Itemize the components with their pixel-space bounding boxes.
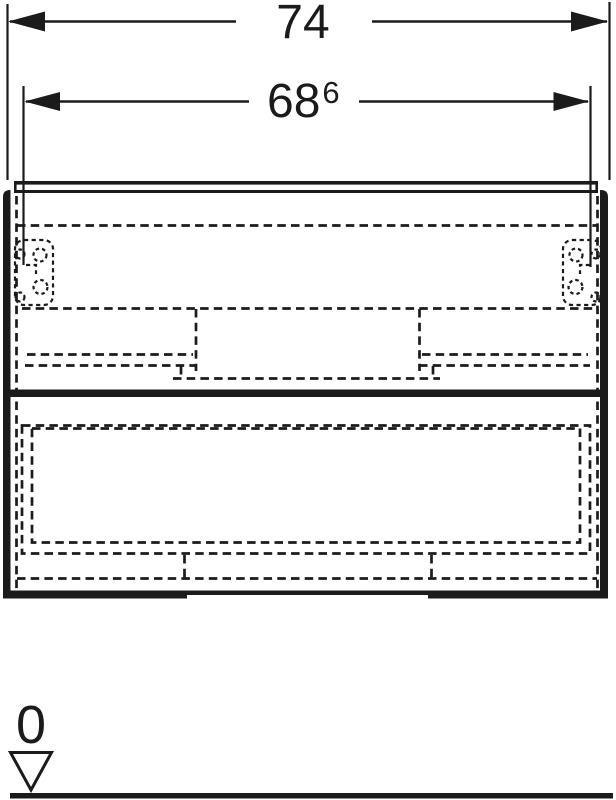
- lower-drawer-outer-outline: [22, 426, 590, 554]
- dim-inner-width-label: 686: [267, 75, 340, 128]
- cabinet-bottom-right-step: [428, 591, 608, 599]
- datum-level-marker: 0: [10, 695, 613, 799]
- slide-roller-icon: [34, 249, 47, 262]
- drawer-slide-left: [15, 240, 53, 305]
- countertop-top-edge: [14, 181, 598, 185]
- slide-roller-icon: [569, 280, 583, 294]
- arrowhead-right-icon: [571, 12, 608, 32]
- datum-label: 0: [16, 695, 46, 755]
- datum-triangle-icon: [11, 753, 52, 791]
- slide-roller-icon: [34, 280, 48, 294]
- countertop-bottom-edge: [14, 190, 598, 193]
- slide-roller-icon: [592, 250, 601, 259]
- arrowhead-right-icon: [554, 92, 590, 111]
- dim-inner-width: 686: [24, 75, 591, 267]
- dim-inner-width-superscript: 6: [322, 75, 339, 110]
- drawer-divider-edge: [3, 390, 608, 398]
- arrowhead-left-icon: [25, 92, 61, 111]
- countertop-left-endcap: [14, 181, 17, 193]
- lower-drawer-hidden-box: [17, 426, 597, 579]
- cabinet-elevation-drawing: 74 686: [0, 0, 616, 800]
- slide-bracket-detail: [26, 265, 36, 274]
- arrowhead-left-icon: [8, 12, 45, 32]
- lower-drawer-inner-outline: [32, 429, 580, 543]
- slide-roller-icon: [592, 293, 601, 302]
- technical-drawing-canvas: 74 686: [0, 0, 616, 800]
- drawer-slide-right: [563, 240, 601, 305]
- cabinet-carcass: [3, 181, 608, 599]
- slide-bracket-detail: [580, 265, 590, 274]
- slide-roller-icon: [570, 249, 583, 262]
- countertop-right-endcap: [595, 181, 598, 193]
- floor-line: [10, 793, 613, 799]
- dim-inner-width-value: 68: [267, 75, 320, 128]
- cabinet-bottom-left-step: [3, 591, 187, 599]
- dim-outer-width-label: 74: [276, 0, 329, 49]
- upper-drawer-hidden-box: [22, 309, 594, 379]
